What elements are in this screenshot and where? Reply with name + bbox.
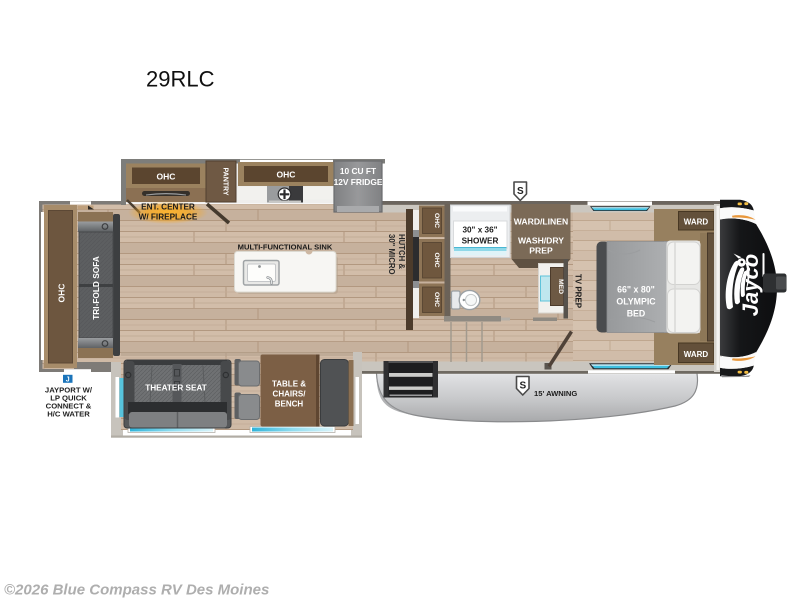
- svg-text:S: S: [519, 381, 526, 392]
- svg-text:BENCH: BENCH: [275, 400, 304, 409]
- svg-text:WASH/DRY: WASH/DRY: [518, 236, 564, 246]
- svg-text:TABLE &: TABLE &: [272, 380, 306, 389]
- svg-text:OHC: OHC: [157, 172, 176, 182]
- svg-text:WARD/LINEN: WARD/LINEN: [514, 217, 568, 227]
- svg-text:OHC: OHC: [433, 252, 440, 267]
- svg-text:J: J: [66, 377, 70, 384]
- svg-text:OHC: OHC: [433, 292, 440, 307]
- svg-text:TV PREP: TV PREP: [574, 274, 583, 309]
- svg-text:THEATER SEAT: THEATER SEAT: [145, 384, 207, 393]
- svg-text:PANTRY: PANTRY: [222, 168, 229, 196]
- svg-text:HUTCH &: HUTCH &: [397, 234, 406, 269]
- svg-text:OHC: OHC: [57, 284, 67, 303]
- svg-text:PREP: PREP: [529, 246, 553, 256]
- svg-text:29RLC: 29RLC: [146, 67, 215, 92]
- svg-text:BED: BED: [627, 309, 646, 319]
- svg-text:MULTI-FUNCTIONAL SINK: MULTI-FUNCTIONAL SINK: [238, 243, 333, 252]
- svg-text:30" MICRO: 30" MICRO: [387, 234, 396, 275]
- svg-text:©2026 Blue Compass RV Des Moin: ©2026 Blue Compass RV Des Moines: [4, 582, 269, 599]
- svg-text:SHOWER: SHOWER: [462, 237, 499, 246]
- svg-text:ENT. CENTER: ENT. CENTER: [141, 203, 195, 212]
- svg-text:66" x 80": 66" x 80": [617, 285, 655, 295]
- svg-text:S: S: [517, 186, 524, 197]
- svg-text:OLYMPIC: OLYMPIC: [616, 297, 656, 307]
- svg-text:OHC: OHC: [433, 213, 440, 228]
- svg-text:H/C WATER: H/C WATER: [47, 409, 90, 418]
- svg-text:15' AWNING: 15' AWNING: [534, 389, 577, 398]
- svg-text:TRI-FOLD SOFA: TRI-FOLD SOFA: [91, 256, 101, 320]
- svg-text:W/ FIREPLACE: W/ FIREPLACE: [139, 213, 198, 222]
- svg-text:CHAIRS/: CHAIRS/: [273, 390, 307, 399]
- svg-text:10 CU FT: 10 CU FT: [340, 166, 377, 176]
- svg-text:WARD: WARD: [684, 350, 709, 359]
- svg-text:30" x 36": 30" x 36": [462, 226, 497, 235]
- svg-text:12V FRIDGE: 12V FRIDGE: [334, 177, 383, 187]
- svg-text:WARD: WARD: [684, 218, 709, 227]
- svg-text:MED: MED: [557, 279, 564, 294]
- svg-text:OHC: OHC: [277, 170, 296, 180]
